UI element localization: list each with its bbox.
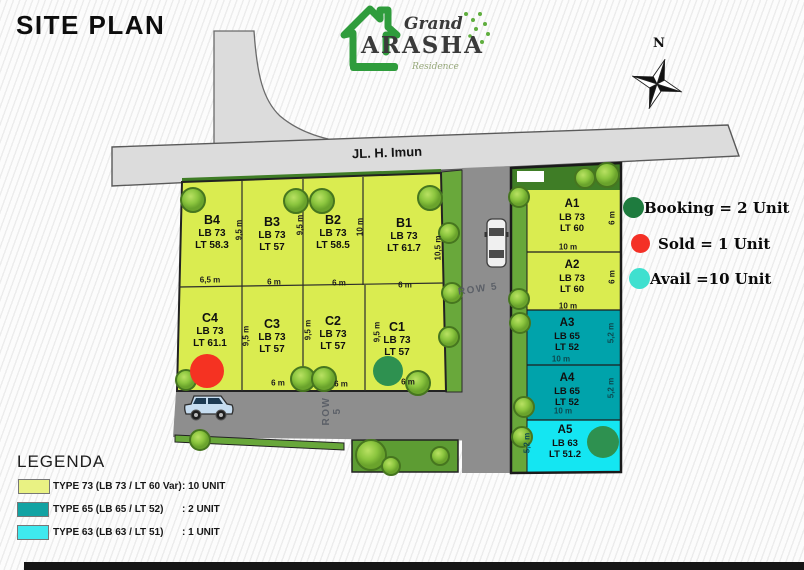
dim-c3-width: 6 m xyxy=(271,379,285,388)
plot-label-a4: A4 LB 65 LT 52 xyxy=(554,372,580,408)
legenda-swatch-type65 xyxy=(17,502,49,517)
plot-label-b1: B1 LB 73 LT 61.7 xyxy=(387,216,421,254)
legenda-label-type73: TYPE 73 (LB 73 / LT 60 Var) xyxy=(53,481,182,492)
dim-a4-side: 5,2 m xyxy=(607,378,616,398)
legenda-count-type73: : 10 UNIT xyxy=(182,481,225,492)
compass-rose: N xyxy=(627,38,687,120)
brand-logo: Grand ARASHA Residence xyxy=(336,2,516,88)
plot-lb: LB 73 xyxy=(193,326,227,338)
plot-lt: LT 52 xyxy=(554,342,580,353)
avail-legend-icon xyxy=(629,268,650,289)
sold-legend-icon xyxy=(631,234,650,253)
plot-lt: LT 57 xyxy=(258,343,285,355)
legenda-title: LEGENDA xyxy=(17,452,105,472)
dim-a2-width: 10 m xyxy=(559,302,577,311)
sold-marker-c4 xyxy=(190,354,224,388)
booking-marker-a5 xyxy=(587,426,619,458)
dim-c4-side: 9,5 m xyxy=(242,326,251,346)
plot-lb: LB 73 xyxy=(559,212,585,223)
plot-id: A1 xyxy=(559,198,585,212)
legenda-count-type63: : 1 UNIT xyxy=(182,527,220,538)
plot-lb: LB 63 xyxy=(549,438,581,449)
dim-a3-width: 10 m xyxy=(552,355,570,364)
dim-c2-width: 6 m xyxy=(334,380,348,389)
plot-lb: LB 73 xyxy=(559,273,585,284)
logo-residence-text: Residence xyxy=(412,62,459,72)
plot-lb: LB 73 xyxy=(316,228,350,240)
plot-label-c1: C1 LB 73 LT 57 xyxy=(383,320,410,358)
row5-bottom-label: ROW 5 xyxy=(321,391,343,431)
plot-lt: LT 58.5 xyxy=(316,239,350,251)
legenda-swatch-type73 xyxy=(18,479,50,494)
dim-a3-side: 5,2 m xyxy=(607,323,616,343)
plot-lb: LB 65 xyxy=(554,386,580,397)
booking-marker-c1 xyxy=(373,356,403,386)
plot-label-a3: A3 LB 65 LT 52 xyxy=(554,317,580,353)
dim-b4-side: 9,5 m xyxy=(235,220,244,240)
plot-id: C4 xyxy=(193,311,227,326)
main-road-label: JL. H. Imun xyxy=(352,144,423,161)
plot-label-a2: A2 LB 73 LT 60 xyxy=(559,259,585,295)
plot-id: C3 xyxy=(258,317,285,332)
dim-a1-width: 10 m xyxy=(559,243,577,252)
plot-label-b2: B2 LB 73 LT 58.5 xyxy=(316,213,350,251)
dim-b1-width: 6 m xyxy=(398,281,412,290)
legenda-count-type65: : 2 UNIT xyxy=(182,504,220,515)
plot-id: A4 xyxy=(554,372,580,386)
plot-id: B2 xyxy=(316,213,350,228)
plot-label-c3: C3 LB 73 LT 57 xyxy=(258,317,285,355)
dim-b3-side: 9,5 m xyxy=(296,215,305,235)
plot-lt: LT 60 xyxy=(559,284,585,295)
plot-label-b3: B3 LB 73 LT 57 xyxy=(258,215,285,253)
entry-road xyxy=(214,31,356,152)
site-plan-canvas: SITE PLAN Grand ARASHA Residence N xyxy=(0,0,804,570)
dim-c3-side: 9,5 m xyxy=(304,320,313,340)
logo-grand-text: Grand xyxy=(404,14,463,34)
plot-id: B4 xyxy=(195,213,229,228)
plot-id: A2 xyxy=(559,259,585,273)
dim-c2-side: 9,5 m xyxy=(373,322,382,342)
sold-legend-label: Sold = 1 Unit xyxy=(658,235,770,253)
dim-a1-side: 6 m xyxy=(608,211,617,225)
plot-lt: LT 57 xyxy=(319,340,346,352)
plot-id: A5 xyxy=(549,424,581,438)
plot-id: A3 xyxy=(554,317,580,331)
legenda-label-type63: TYPE 63 (LB 63 / LT 51) xyxy=(53,527,163,538)
plot-lt: LT 51.2 xyxy=(549,449,581,460)
legenda-label-type65: TYPE 65 (LB 65 / LT 52) xyxy=(53,504,163,515)
plot-lb: LB 73 xyxy=(258,332,285,344)
plot-lt: LT 61.7 xyxy=(387,242,421,254)
plot-lb: LB 73 xyxy=(195,228,229,240)
avail-legend-label: Avail =10 Unit xyxy=(650,270,771,288)
plot-lt: LT 60 xyxy=(559,223,585,234)
plot-label-b4: B4 LB 73 LT 58.3 xyxy=(195,213,229,251)
plot-id: B3 xyxy=(258,215,285,230)
plot-label-a1: A1 LB 73 LT 60 xyxy=(559,198,585,234)
compass-north-label: N xyxy=(653,36,665,51)
logo-arasha-text: ARASHA xyxy=(361,32,484,59)
dim-b3-width: 6 m xyxy=(267,278,281,287)
blank-sign xyxy=(517,171,544,182)
plot-lt: LT 61.1 xyxy=(193,337,227,349)
dim-a4-width: 10 m xyxy=(554,407,572,416)
plot-lb: LB 73 xyxy=(319,329,346,341)
plot-lb: LB 73 xyxy=(258,230,285,242)
dim-b2-side: 10 m xyxy=(356,218,365,236)
legenda-swatch-type63 xyxy=(17,525,49,540)
dim-c1-width: 6 m xyxy=(401,378,415,387)
dim-b4-width: 6,5 m xyxy=(200,276,220,285)
plot-lb: LB 73 xyxy=(383,335,410,347)
dim-a5-side: 5,2 m xyxy=(523,433,532,453)
plot-lb: LB 65 xyxy=(554,331,580,342)
dim-b2-width: 6 m xyxy=(332,279,346,288)
plot-id: B1 xyxy=(387,216,421,231)
plot-lt: LT 57 xyxy=(258,241,285,253)
plot-label-c4: C4 LB 73 LT 61.1 xyxy=(193,311,227,349)
plot-lt: LT 58.3 xyxy=(195,239,229,251)
plot-id: C2 xyxy=(319,314,346,329)
plot-label-a5: A5 LB 63 LT 51.2 xyxy=(549,424,581,460)
plot-label-c2: C2 LB 73 LT 57 xyxy=(319,314,346,352)
page-title: SITE PLAN xyxy=(16,10,165,41)
dim-b1-side: 10,5 m xyxy=(434,236,443,261)
car-top-view xyxy=(485,219,509,267)
booking-legend-label: Booking = 2 Unit xyxy=(644,199,789,217)
dim-a2-side: 6 m xyxy=(608,270,617,284)
plot-lb: LB 73 xyxy=(387,231,421,243)
booking-legend-icon xyxy=(623,197,644,218)
bottom-divider-bar xyxy=(24,562,804,570)
plot-id: C1 xyxy=(383,320,410,335)
